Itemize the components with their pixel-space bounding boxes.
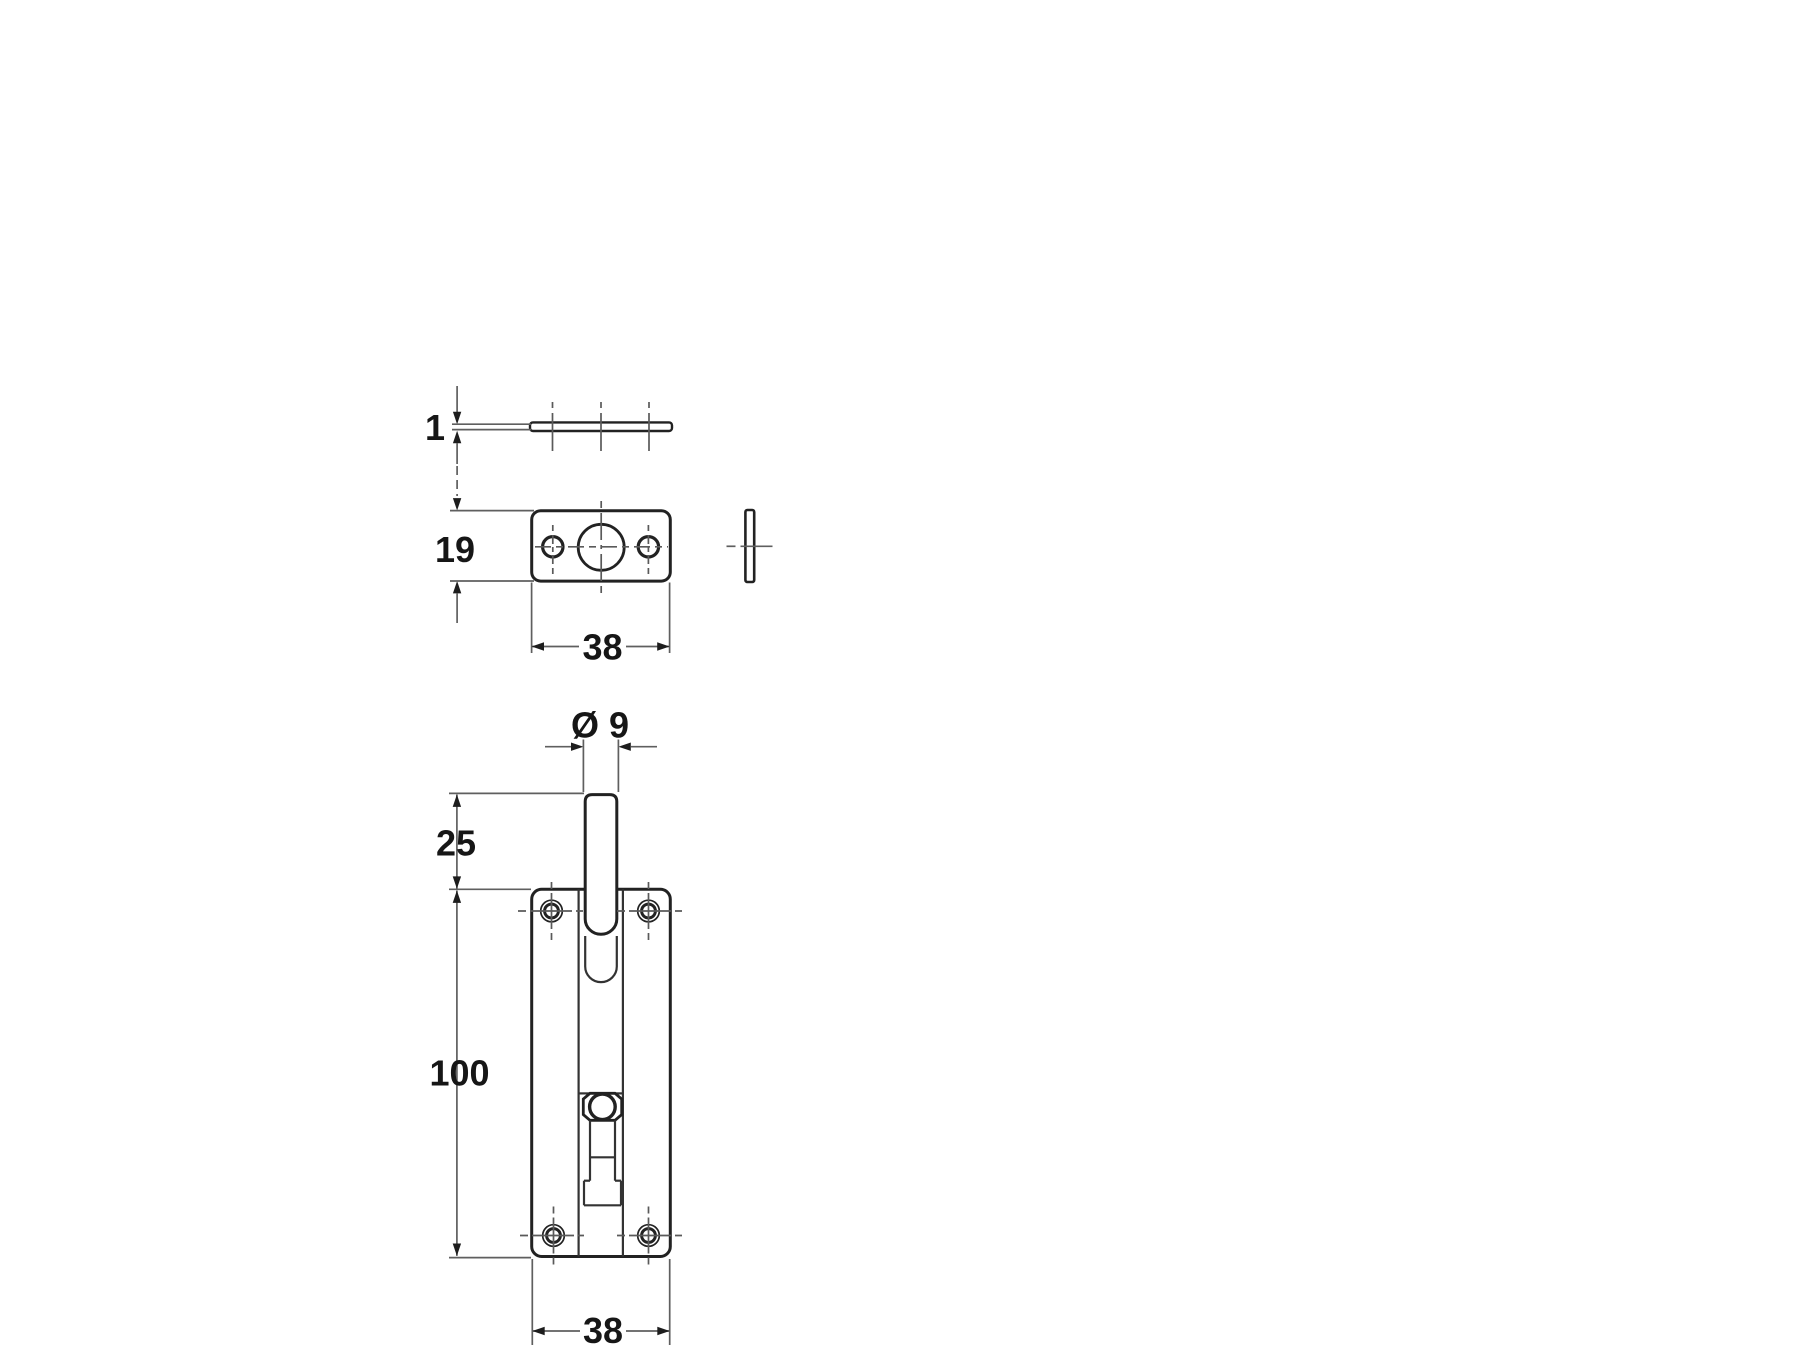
dim-bolt-diameter: Ø 9 [545, 705, 657, 793]
strike-plate-side-view [727, 510, 773, 582]
technical-drawing-page: 1 19 38 [0, 0, 1800, 1350]
strike-plate-edge-view [530, 402, 672, 451]
dim-arrow-right-icon [657, 1327, 669, 1335]
dim-arrow-down-icon [453, 412, 461, 424]
dim-arrow-up-icon [453, 431, 461, 443]
dim-plate-height: 100 [429, 889, 531, 1257]
technical-drawing: 1 19 38 [0, 0, 1800, 1350]
dim-arrow-up-icon [453, 581, 461, 593]
dim-plate-thickness: 1 [425, 386, 531, 496]
dim-keep-height-label: 19 [435, 529, 475, 570]
dim-arrow-down-icon [453, 1244, 461, 1256]
dim-arrow-right-icon [657, 642, 669, 650]
dim-plate-height-label: 100 [429, 1053, 489, 1094]
dim-arrow-left-icon [532, 642, 544, 650]
bolt-rod [585, 795, 617, 919]
dim-arrow-down-icon [453, 876, 461, 888]
bolt-front-view [518, 795, 682, 1266]
knob [590, 1094, 616, 1120]
bolt-backplate [532, 889, 671, 1256]
dim-bolt-diameter-label: Ø 9 [571, 705, 629, 746]
strike-plate-front-view [532, 501, 671, 593]
dim-keep-width-label: 38 [582, 627, 622, 668]
dim-plate-width-label: 38 [583, 1310, 623, 1350]
dim-keep-height: 19 [435, 498, 534, 623]
dim-bolt-extension: 25 [436, 793, 584, 888]
dim-plate-width: 38 [532, 1259, 669, 1350]
dim-arrow-down-icon [453, 498, 461, 510]
dim-arrow-up-icon [453, 795, 461, 807]
dim-arrow-left-icon [532, 1327, 544, 1335]
dim-plate-thickness-label: 1 [425, 407, 445, 448]
dim-arrow-up-icon [453, 891, 461, 903]
dim-keep-width: 38 [532, 583, 670, 668]
dim-bolt-extension-label: 25 [436, 823, 476, 864]
